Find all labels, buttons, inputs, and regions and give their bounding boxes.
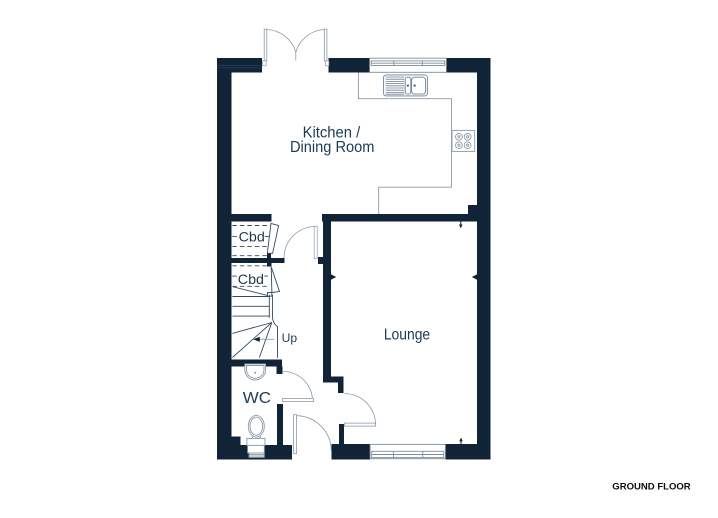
svg-text:Dining Room: Dining Room <box>290 139 374 156</box>
svg-text:Cbd: Cbd <box>238 271 264 287</box>
svg-text:Lounge: Lounge <box>384 327 430 344</box>
svg-text:Up: Up <box>282 333 298 345</box>
svg-text:WC: WC <box>243 390 271 407</box>
svg-text:Cbd: Cbd <box>239 229 265 245</box>
svg-text:GROUND FLOOR: GROUND FLOOR <box>612 482 691 492</box>
